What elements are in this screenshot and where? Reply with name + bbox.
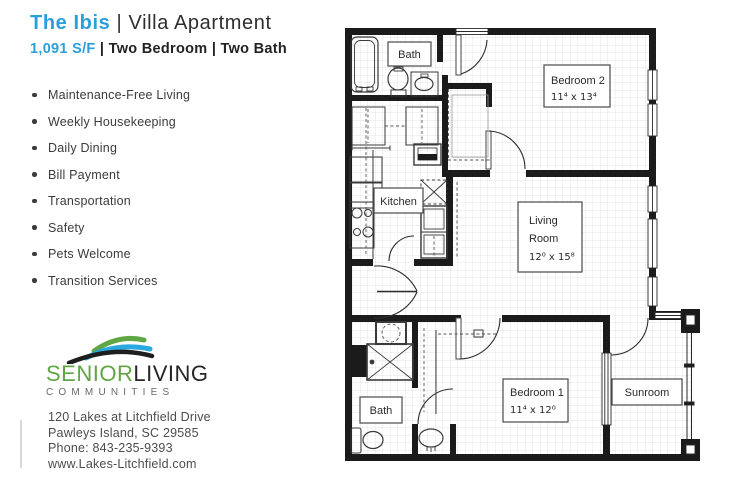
floorplan-drawing: Bath Bedroom 2 11⁴ x 13⁴ Kitchen Living …	[0, 0, 750, 499]
living-room-label: Living Room 12⁰ x 15⁸	[518, 202, 582, 272]
bath2-label: Bath	[360, 397, 402, 423]
kitchen-label: Kitchen	[374, 188, 423, 213]
bedroom1-label: Bedroom 1 11⁴ x 12⁰	[503, 379, 568, 422]
svg-text:Bath: Bath	[398, 49, 421, 61]
svg-text:Sunroom: Sunroom	[625, 387, 670, 399]
post-inner	[686, 315, 695, 325]
sunroom-label: Sunroom	[612, 379, 682, 405]
bedroom2-label: Bedroom 2 11⁴ x 13⁴	[544, 65, 610, 107]
bedroom2-window	[648, 70, 657, 100]
bedroom1-sunroom-window	[602, 353, 611, 425]
svg-text:Bedroom 1: Bedroom 1	[510, 387, 564, 399]
svg-text:Living: Living	[529, 215, 558, 227]
bedroom2-window	[648, 104, 657, 136]
post-inner	[686, 445, 695, 454]
svg-text:Room: Room	[529, 233, 558, 245]
svg-text:Kitchen: Kitchen	[380, 196, 417, 208]
brochure-page: The Ibis | Villa Apartment 1,091 S/F | T…	[0, 0, 750, 499]
bath1-label: Bath	[388, 42, 431, 66]
svg-text:12⁰ x 15⁸: 12⁰ x 15⁸	[529, 252, 575, 263]
svg-text:11⁴ x 12⁰: 11⁴ x 12⁰	[510, 405, 556, 416]
sunroom-top-window	[655, 313, 681, 319]
living-room-window	[648, 186, 657, 212]
svg-text:Bedroom 2: Bedroom 2	[551, 75, 605, 87]
living-room-window	[648, 277, 657, 306]
chase-block	[351, 345, 367, 377]
svg-text:11⁴ x 13⁴: 11⁴ x 13⁴	[551, 92, 597, 103]
entry-threshold	[456, 29, 488, 35]
living-room-window	[648, 219, 657, 268]
svg-text:Bath: Bath	[370, 405, 393, 417]
